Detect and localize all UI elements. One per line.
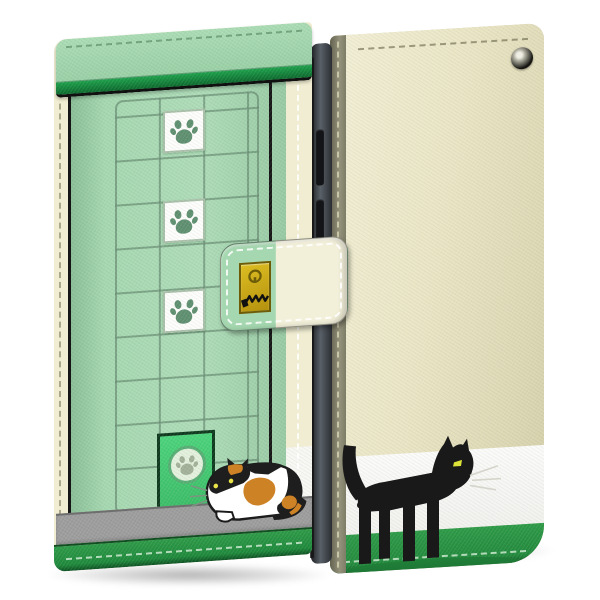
paw-window-3 [163,288,205,333]
front-band-stitching [66,542,302,561]
keyhole-and-zigzag-icons [241,263,269,312]
flap-stitching [66,30,302,49]
lock-charm [239,261,271,314]
clasp-strap [220,235,348,332]
paw-window-1 [163,108,205,153]
paw-print-icon [169,115,199,147]
black-cat-illustration [340,429,518,574]
front-left-stitching [59,104,61,556]
product-photo-stage [0,0,600,600]
paw-print-icon [169,205,199,237]
paw-print-icon [169,295,199,327]
paw-window-2 [163,198,205,243]
front-view-case [54,22,312,572]
calico-cat-illustration [190,450,312,543]
volume-button [316,129,324,185]
back-view-case [330,23,544,574]
